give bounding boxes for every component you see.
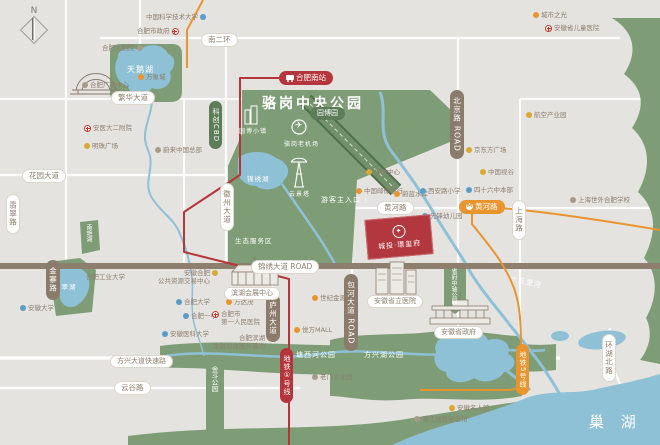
- old-airport-label: 骆岗老机场: [284, 139, 319, 148]
- poi-xian-rd-primary: 西安路小学: [420, 187, 461, 195]
- luzhou-road-pill: 庐州大道: [266, 294, 280, 342]
- poi-dujiang-memorial: 渡江战役纪念馆: [414, 415, 468, 423]
- poi-first-people-hospital: 合肥市第一人民医院: [212, 310, 260, 327]
- poi-grand-theater: 合肥大剧院: [102, 44, 143, 52]
- school-icon: [570, 197, 576, 203]
- museum-icon: [449, 405, 455, 411]
- poi-anhui-univ: 安徽大学: [20, 304, 54, 312]
- yungu-road-pill: 云谷路: [114, 381, 151, 395]
- school-icon: [420, 188, 426, 194]
- poi-mixc: 万象城: [138, 73, 166, 81]
- mall-icon: [312, 295, 318, 301]
- jinzhai-road-pill: 金寨路: [46, 260, 60, 300]
- shengfu-axis-label: 省府中轴公园: [449, 268, 458, 304]
- huayuan-road-pill: 花园大道: [22, 169, 66, 183]
- nanyan-lake-label: 南艳湖: [84, 224, 93, 242]
- yuanbo-town-label: 园博小镇: [239, 126, 267, 135]
- metro-icon: M: [466, 203, 473, 210]
- eco-service-zone-label: 生态服务区: [235, 235, 273, 245]
- exhibition-center-badge: 滨湖会展中心: [224, 287, 280, 300]
- university-icon: [20, 305, 26, 311]
- school-icon: [183, 313, 189, 319]
- beijing-road-pill: 北京路 ROAD: [450, 90, 464, 159]
- university-icon: [162, 331, 168, 337]
- hefei-south-station-label: 合肥南站: [296, 74, 326, 82]
- poi-city-light: 城市之光: [533, 11, 567, 19]
- hospital-icon: [84, 125, 91, 132]
- culture-icon: [312, 374, 318, 380]
- yuanboyuan-badge: 园博园: [310, 107, 345, 120]
- metro-line5-pill: 地铁5号线: [516, 344, 529, 395]
- poi-hfut: 合肥工业大学: [86, 273, 125, 281]
- poi-shanghai-wfl-school: 上海世外合肥学校: [570, 196, 630, 204]
- fanhua-road-pill: 繁华大道: [111, 91, 155, 105]
- mall-icon: [294, 327, 300, 333]
- jindou-park-label: 金斗公园: [209, 366, 219, 392]
- museum-icon: [414, 416, 420, 422]
- government-poi-icon: [172, 28, 179, 35]
- visitor-entrance-label: 游客主入口 ›: [321, 195, 368, 205]
- university-icon: [176, 299, 182, 305]
- poi-boyue-center: 栢悦中心: [366, 168, 400, 176]
- poi-broadcast-center: 合肥广电中心: [82, 81, 129, 89]
- poi-ustc: 中国科学技术大学: [146, 13, 206, 21]
- poi-binhu-finance-base: 合肥滨湖金融后台服务基地: [213, 334, 273, 351]
- poi-hefei-gov: 合肥市政府: [137, 27, 179, 35]
- center-icon: [366, 169, 372, 175]
- huanghe-station-label: 黄河路: [475, 203, 498, 211]
- company-icon: [155, 147, 161, 153]
- poi-golden-resources: 世纪金源: [312, 294, 346, 302]
- chao-lake-label: 巢 湖: [589, 411, 642, 432]
- industry-icon: [480, 169, 486, 175]
- poi-mingzhu-square: 明珠广场: [84, 142, 118, 150]
- poi-celebrity-museum: 安徽名人馆: [449, 404, 490, 412]
- plaza-icon: [466, 147, 472, 153]
- residence-icon: [394, 191, 400, 197]
- baohe-road-pill: 包河大道 ROAD: [344, 274, 358, 351]
- shanghai-road-pill: 上海路: [512, 200, 526, 240]
- poi-laomen-culture-park: 老门文化园: [312, 373, 353, 381]
- building-icon: [82, 82, 88, 88]
- poi-anyi-2nd-hospital: 安医大二附院: [84, 124, 132, 132]
- university-icon: [200, 14, 206, 20]
- tangxihe-park-label: 塘西河公园: [296, 350, 336, 360]
- poi-hefei-univ: 合肥大学: [176, 298, 210, 306]
- fangxing-road-pill: 方兴大道快速路: [110, 355, 173, 368]
- park-tower-label: 云景塔: [289, 189, 310, 198]
- center-icon: [212, 270, 218, 276]
- hefei-south-station-badge: 合肥南站: [279, 71, 333, 85]
- huanhubei-road-pill: 环湖北路: [602, 334, 616, 382]
- poi-nio-hq: 蔚来中国总部: [155, 146, 202, 154]
- government-badge: 安徽省政府: [434, 326, 483, 339]
- nanerhuan-road-pill: 南二环: [201, 33, 238, 47]
- compass: N: [16, 6, 52, 50]
- poi-boe-plaza: 京东方广场: [466, 146, 507, 154]
- fangxinghu-park-label: 方兴湖公园: [364, 350, 404, 360]
- mall-icon: [138, 74, 144, 80]
- huanghe-metro-station-badge: M 黄河路: [459, 200, 505, 214]
- location-map: N ✈ 骆岗中央公园 园博园 科创CBD 园博小镇 骆岗老机场 云景塔 锦绣湖 …: [0, 0, 660, 445]
- poi-resource-center: 安徽合肥公共资源交易中心: [158, 269, 218, 286]
- project-block: ✦ 城投·璟玺府: [364, 214, 433, 260]
- industry-icon: [526, 112, 532, 118]
- poi-anhui-med-univ: 安徽医科大学: [162, 330, 209, 338]
- poi-no46-school: 四十六中本部: [466, 186, 513, 194]
- hospital-icon: [545, 25, 552, 32]
- hospital-icon: [212, 311, 219, 318]
- square-icon: [84, 143, 90, 149]
- poi-yuefang-mall: 悦方MALL: [294, 326, 332, 334]
- project-name: 城投·璟玺府: [378, 238, 422, 252]
- compass-needle-icon: [32, 18, 35, 40]
- jinxiu-lake-label: 锦绣湖: [247, 173, 270, 183]
- landmark-icon: [533, 12, 539, 18]
- school-icon: [466, 187, 472, 193]
- small-pond: [551, 331, 569, 341]
- poi-aviation-park: 航空产业园: [526, 111, 567, 119]
- poi-children-hospital: 安徽省儿童医院: [545, 24, 600, 32]
- airplane-icon: ✈: [295, 121, 303, 131]
- bank-icon: [356, 188, 362, 194]
- metro-line1-pill: 地铁①号线: [280, 348, 293, 403]
- jinxiu-road-pill: 锦绣大道 ROAD: [251, 260, 319, 274]
- train-icon: [286, 75, 294, 80]
- project-emblem-icon: ✦: [391, 224, 405, 238]
- kechuang-cbd-pill: 科创CBD: [209, 101, 222, 149]
- compass-n-label: N: [31, 6, 38, 16]
- huizhou-road-pill: 徽州大道: [220, 183, 234, 231]
- feicui-road-pill: 翡翠路: [6, 194, 20, 234]
- poi-china-vision-valley: 中国视谷: [480, 168, 514, 176]
- theater-icon: [137, 45, 143, 51]
- provincial-hospital-badge: 安徽省立医院: [367, 295, 423, 308]
- huanghe-road-pill: 黄河路: [377, 201, 414, 215]
